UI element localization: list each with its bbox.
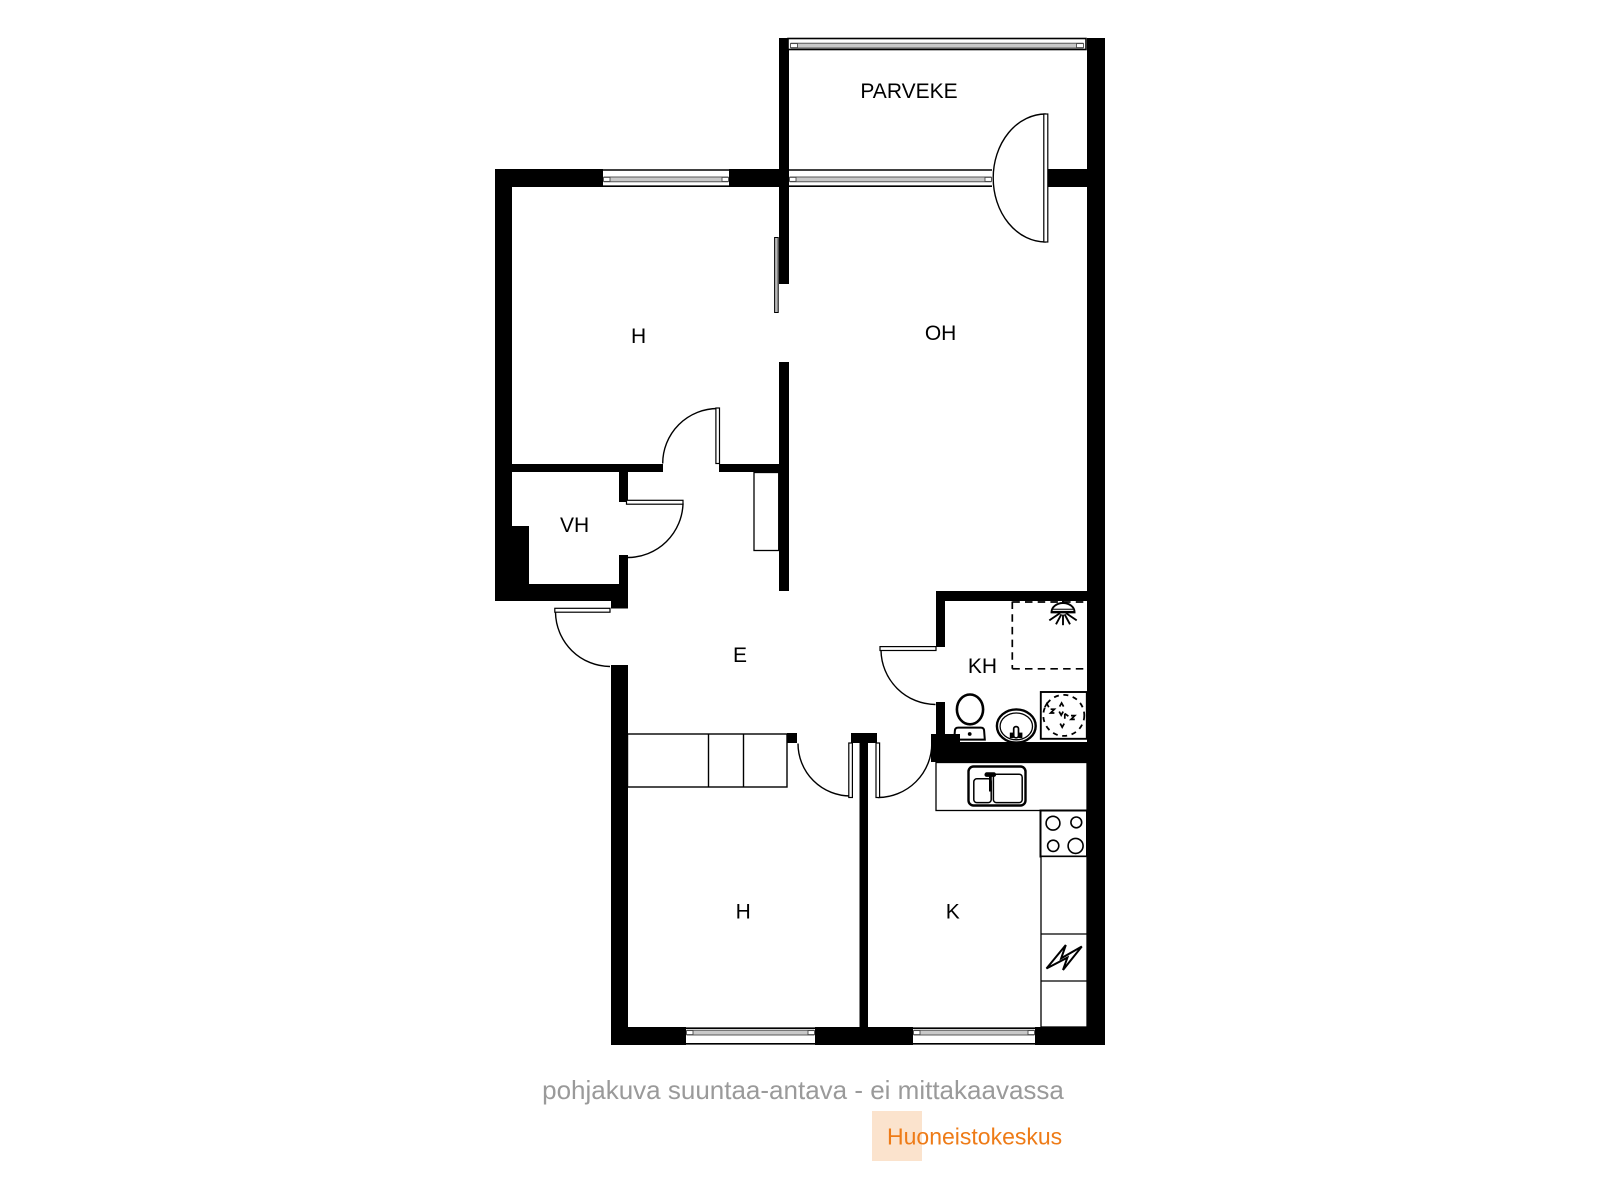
svg-text:VH: VH — [560, 514, 589, 537]
svg-text:H: H — [736, 901, 751, 924]
svg-text:E: E — [733, 644, 747, 667]
svg-text:K: K — [946, 901, 960, 924]
svg-text:PARVEKE: PARVEKE — [860, 80, 957, 103]
svg-text:Huoneistokeskus: Huoneistokeskus — [887, 1124, 1062, 1150]
svg-text:KH: KH — [968, 655, 997, 678]
svg-text:OH: OH — [925, 322, 957, 345]
svg-text:H: H — [631, 325, 646, 348]
svg-text:pohjakuva suuntaa-antava - ei: pohjakuva suuntaa-antava - ei mittakaava… — [542, 1075, 1064, 1105]
